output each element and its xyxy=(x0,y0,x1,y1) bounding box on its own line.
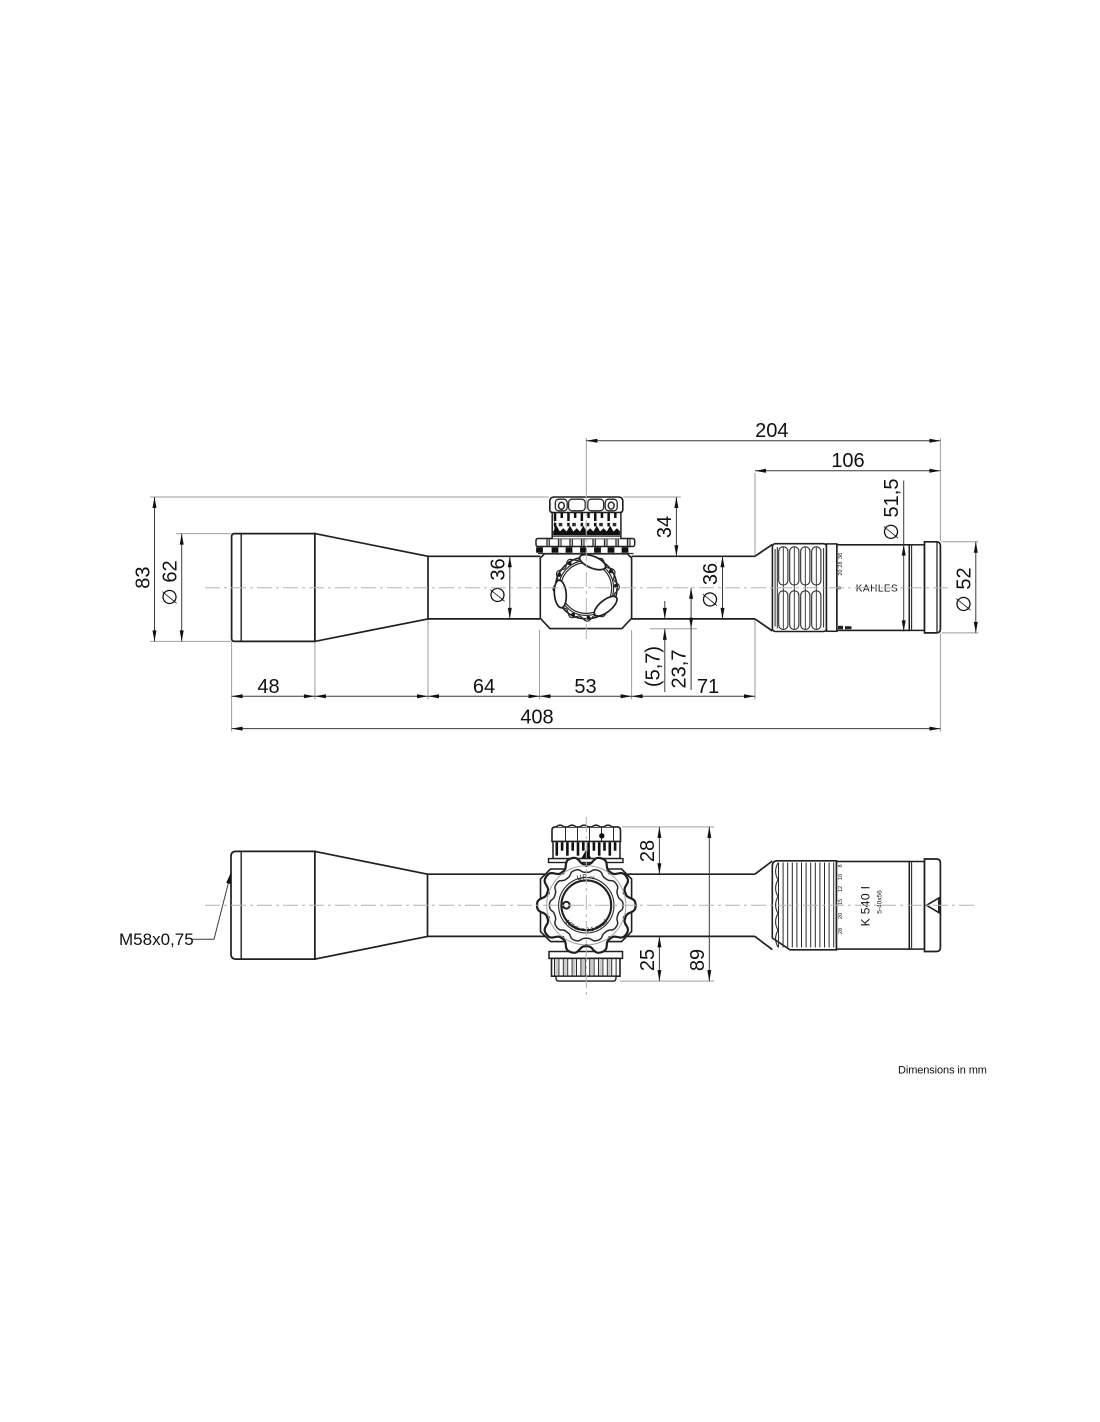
svg-text:∅ 36: ∅ 36 xyxy=(700,563,722,608)
svg-text:∅ 62: ∅ 62 xyxy=(160,560,182,605)
svg-text:12: 12 xyxy=(838,886,844,892)
svg-text:34: 34 xyxy=(654,516,676,538)
svg-text:64: 64 xyxy=(473,676,495,698)
svg-text:48: 48 xyxy=(257,676,279,698)
svg-text:20: 20 xyxy=(838,913,844,919)
svg-text:28: 28 xyxy=(838,928,844,934)
svg-text:15: 15 xyxy=(838,899,844,905)
svg-text:204: 204 xyxy=(755,420,788,442)
svg-text:∅ 52: ∅ 52 xyxy=(954,567,976,612)
svg-text:106: 106 xyxy=(831,450,864,472)
svg-text:10: 10 xyxy=(838,874,844,880)
svg-text:∅ 51,5: ∅ 51,5 xyxy=(881,479,903,541)
svg-text:M58x0,75: M58x0,75 xyxy=(119,930,194,949)
svg-text:KAHLES: KAHLES xyxy=(856,584,898,595)
svg-text:23,7: 23,7 xyxy=(669,650,691,689)
svg-text:∅ 36: ∅ 36 xyxy=(488,558,510,603)
svg-text:8: 8 xyxy=(838,864,844,867)
svg-text:Dimensions in mm: Dimensions in mm xyxy=(898,1065,987,1077)
svg-text:K 540 I: K 540 I xyxy=(859,886,873,927)
svg-text:408: 408 xyxy=(520,707,553,729)
svg-text:(5,7): (5,7) xyxy=(643,646,665,687)
svg-text:83: 83 xyxy=(133,566,155,588)
svg-text:5-40x56: 5-40x56 xyxy=(877,890,884,914)
svg-text:38: 38 xyxy=(838,553,844,559)
svg-text:89: 89 xyxy=(687,949,709,971)
svg-text:71: 71 xyxy=(697,676,719,698)
svg-text:20: 20 xyxy=(838,569,844,575)
svg-text:25: 25 xyxy=(637,949,659,971)
svg-text:28: 28 xyxy=(838,561,844,567)
svg-text:28: 28 xyxy=(637,840,659,862)
svg-text:53: 53 xyxy=(574,676,596,698)
